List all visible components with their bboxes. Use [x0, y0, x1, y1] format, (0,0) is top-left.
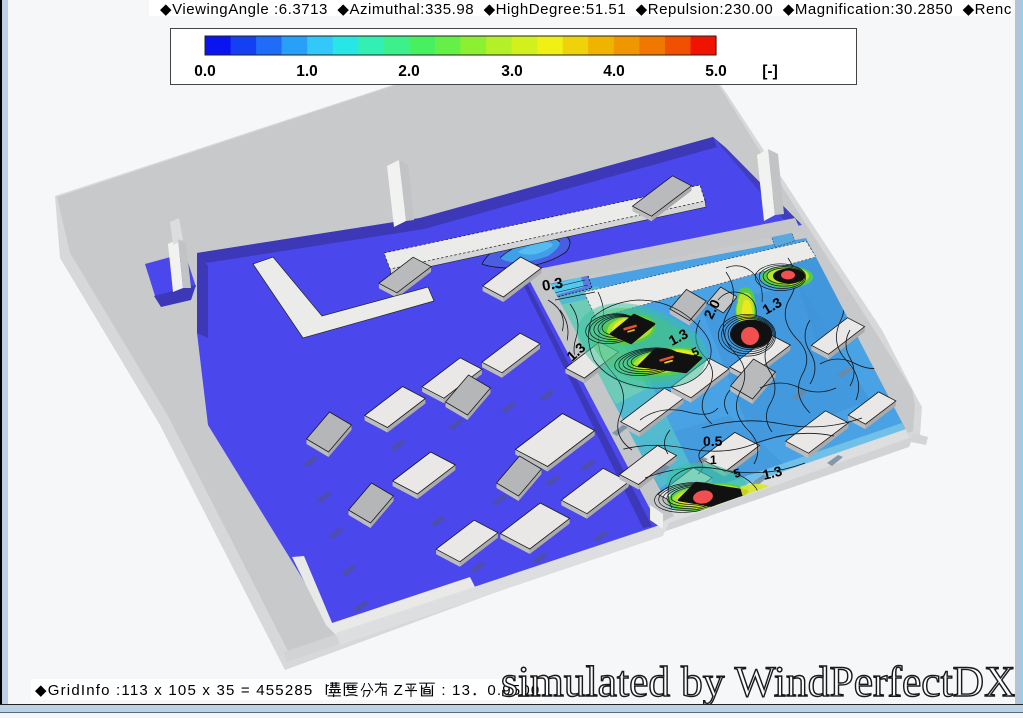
svg-text:0.3: 0.3 — [541, 275, 564, 295]
svg-text:2.0: 2.0 — [398, 63, 420, 80]
svg-text:1.0: 1.0 — [296, 63, 318, 80]
svg-text:1: 1 — [710, 453, 717, 467]
svg-text:4.0: 4.0 — [603, 63, 625, 80]
svg-text:0.0: 0.0 — [194, 63, 216, 80]
svg-text:3.0: 3.0 — [501, 63, 523, 80]
svg-text:5.0: 5.0 — [705, 63, 727, 80]
svg-text:[-]: [-] — [762, 63, 778, 80]
svg-text:0.5: 0.5 — [703, 433, 723, 449]
